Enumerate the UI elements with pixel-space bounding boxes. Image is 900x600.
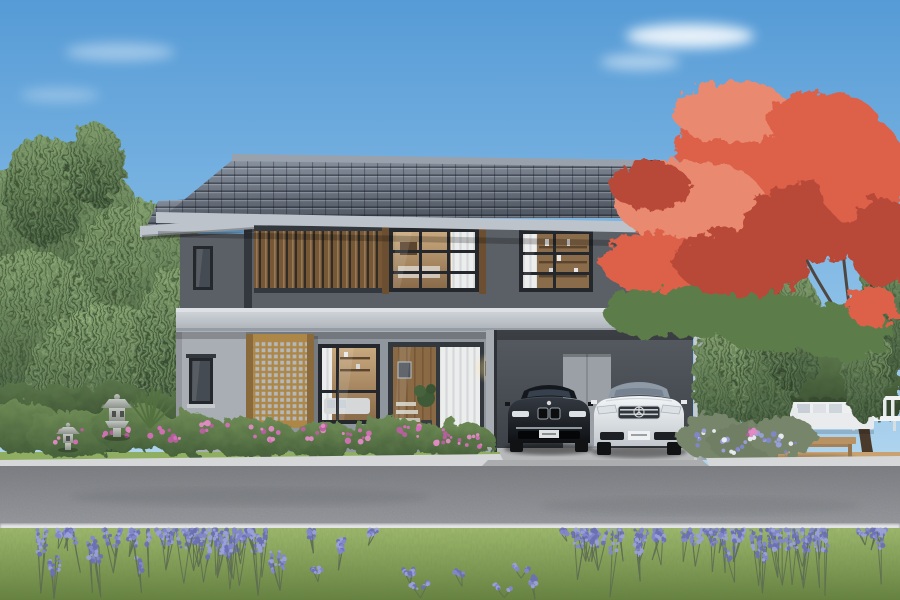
wing-upper-window [193, 246, 213, 290]
house-exterior-rendering: Modern two-storey Japanese-style house w… [0, 0, 900, 600]
wing-lower-window [186, 354, 216, 408]
living-room-window [318, 344, 380, 424]
rendered-photo: Modern two-storey Japanese-style house w… [0, 0, 900, 600]
road [0, 466, 900, 530]
lower-lattice-screen [246, 334, 318, 428]
